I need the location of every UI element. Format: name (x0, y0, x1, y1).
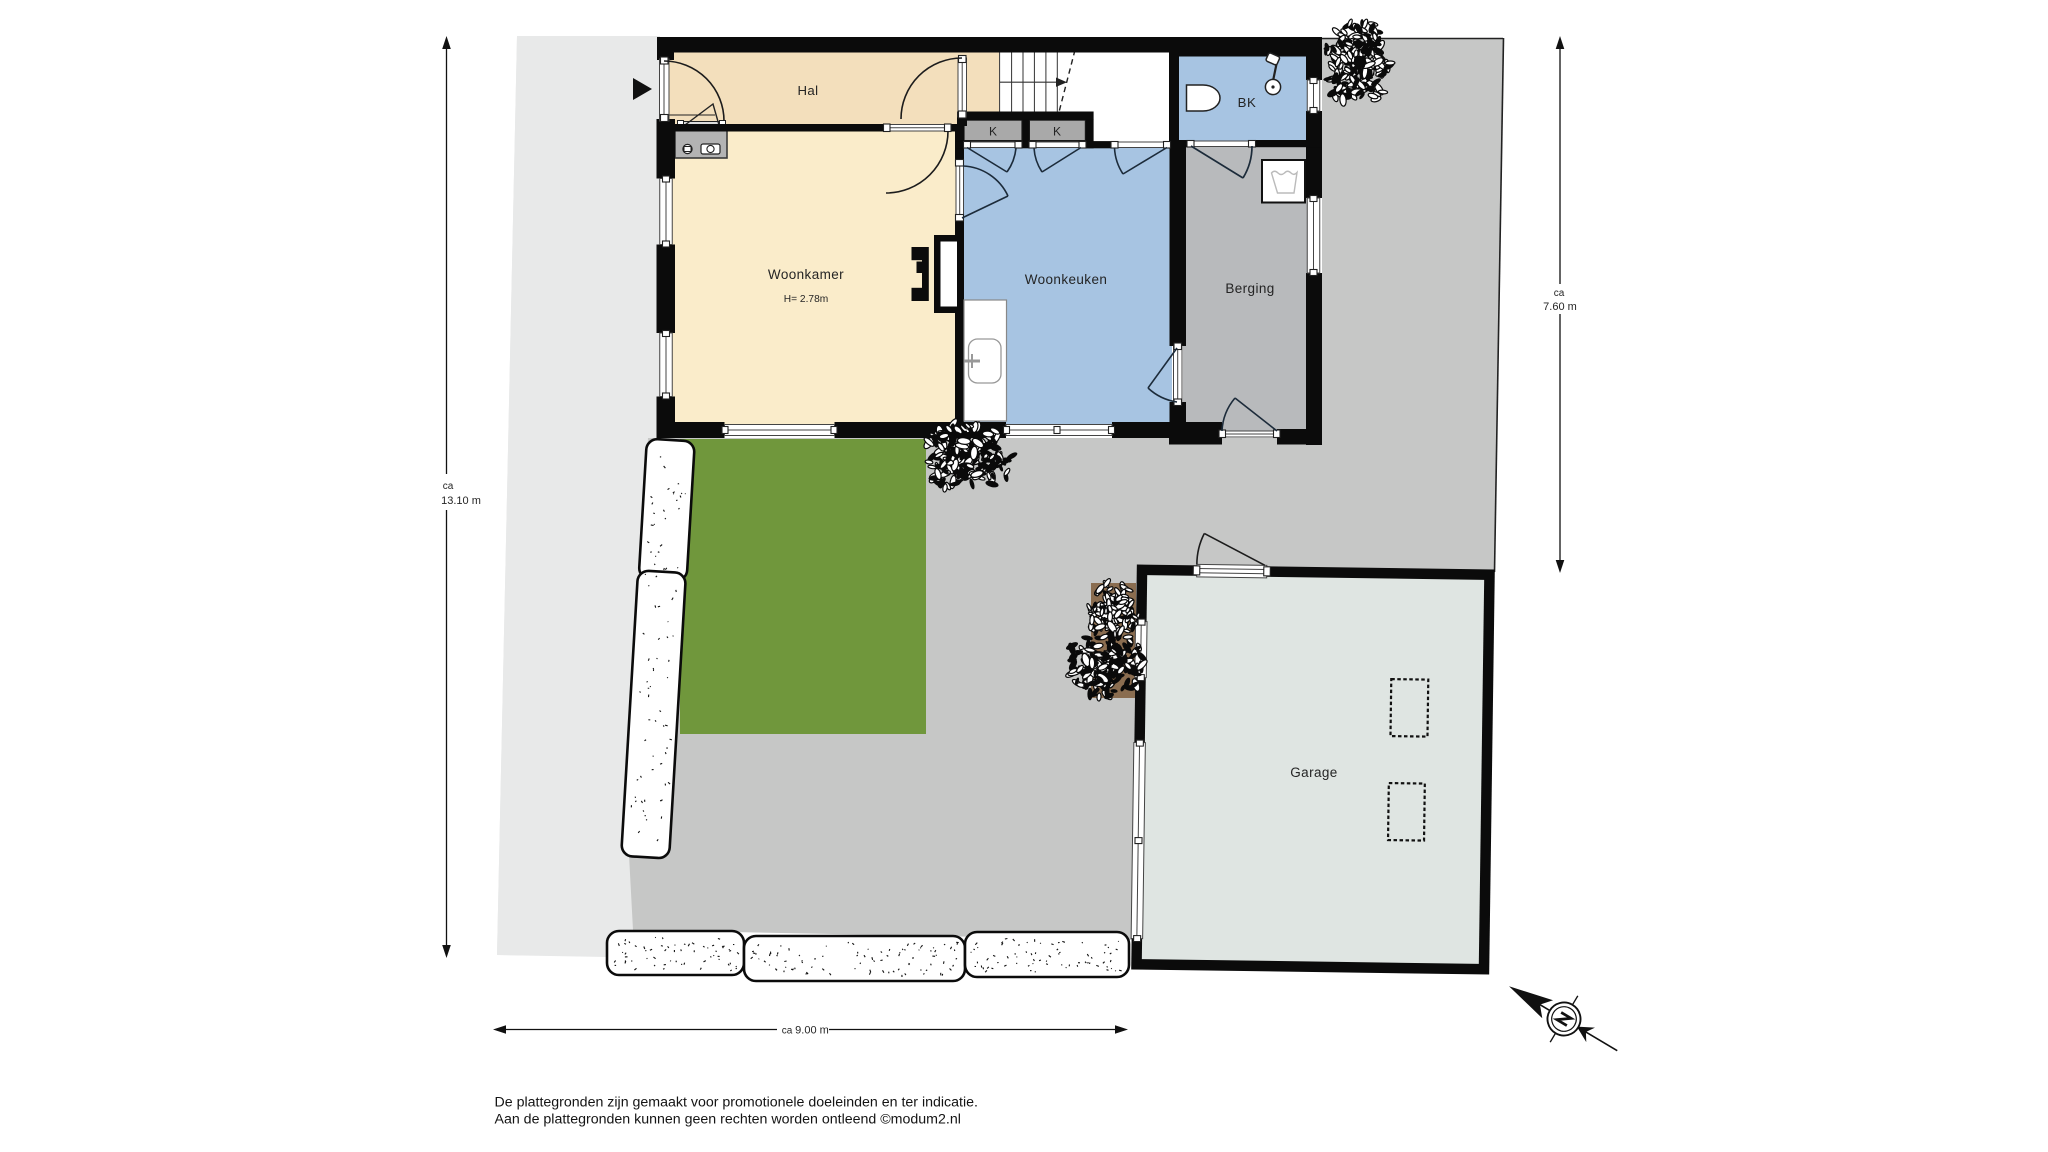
svg-text:Aan de plattegronden kunnen ge: Aan de plattegronden kunnen geen rechten… (495, 1112, 961, 1128)
svg-text:De plattegronden zijn gemaakt: De plattegronden zijn gemaakt voor promo… (495, 1095, 978, 1111)
svg-text:Garage: Garage (1290, 765, 1337, 780)
svg-text:Berging: Berging (1225, 281, 1274, 296)
svg-text:H= 2.78m: H= 2.78m (784, 294, 828, 305)
svg-text:BK: BK (1238, 95, 1257, 110)
svg-text:13.10 m: 13.10 m (441, 495, 481, 507)
svg-text:7.60 m: 7.60 m (1543, 301, 1577, 313)
svg-text:K: K (989, 125, 997, 139)
svg-text:ca: ca (443, 481, 454, 492)
svg-text:Woonkamer: Woonkamer (768, 267, 844, 282)
svg-text:Hal: Hal (798, 83, 819, 98)
svg-text:ca: ca (782, 1026, 793, 1037)
svg-text:9.00 m: 9.00 m (795, 1025, 829, 1037)
svg-text:Woonkeuken: Woonkeuken (1025, 272, 1108, 287)
svg-text:ca: ca (1554, 288, 1565, 299)
svg-text:K: K (1053, 125, 1061, 139)
